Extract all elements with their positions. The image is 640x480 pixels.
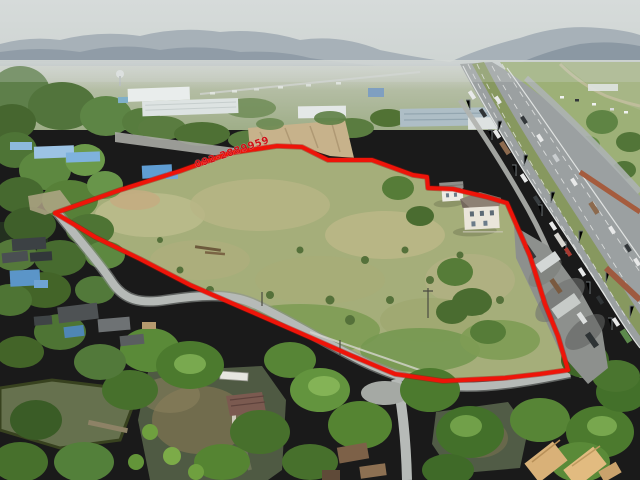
aerial-photo: 092-2889959: [0, 0, 640, 480]
building-blue: [368, 88, 384, 97]
boat: [220, 371, 248, 381]
atmosphere-overlay: [0, 62, 640, 82]
scene-svg: 092-2889959: [0, 0, 640, 480]
